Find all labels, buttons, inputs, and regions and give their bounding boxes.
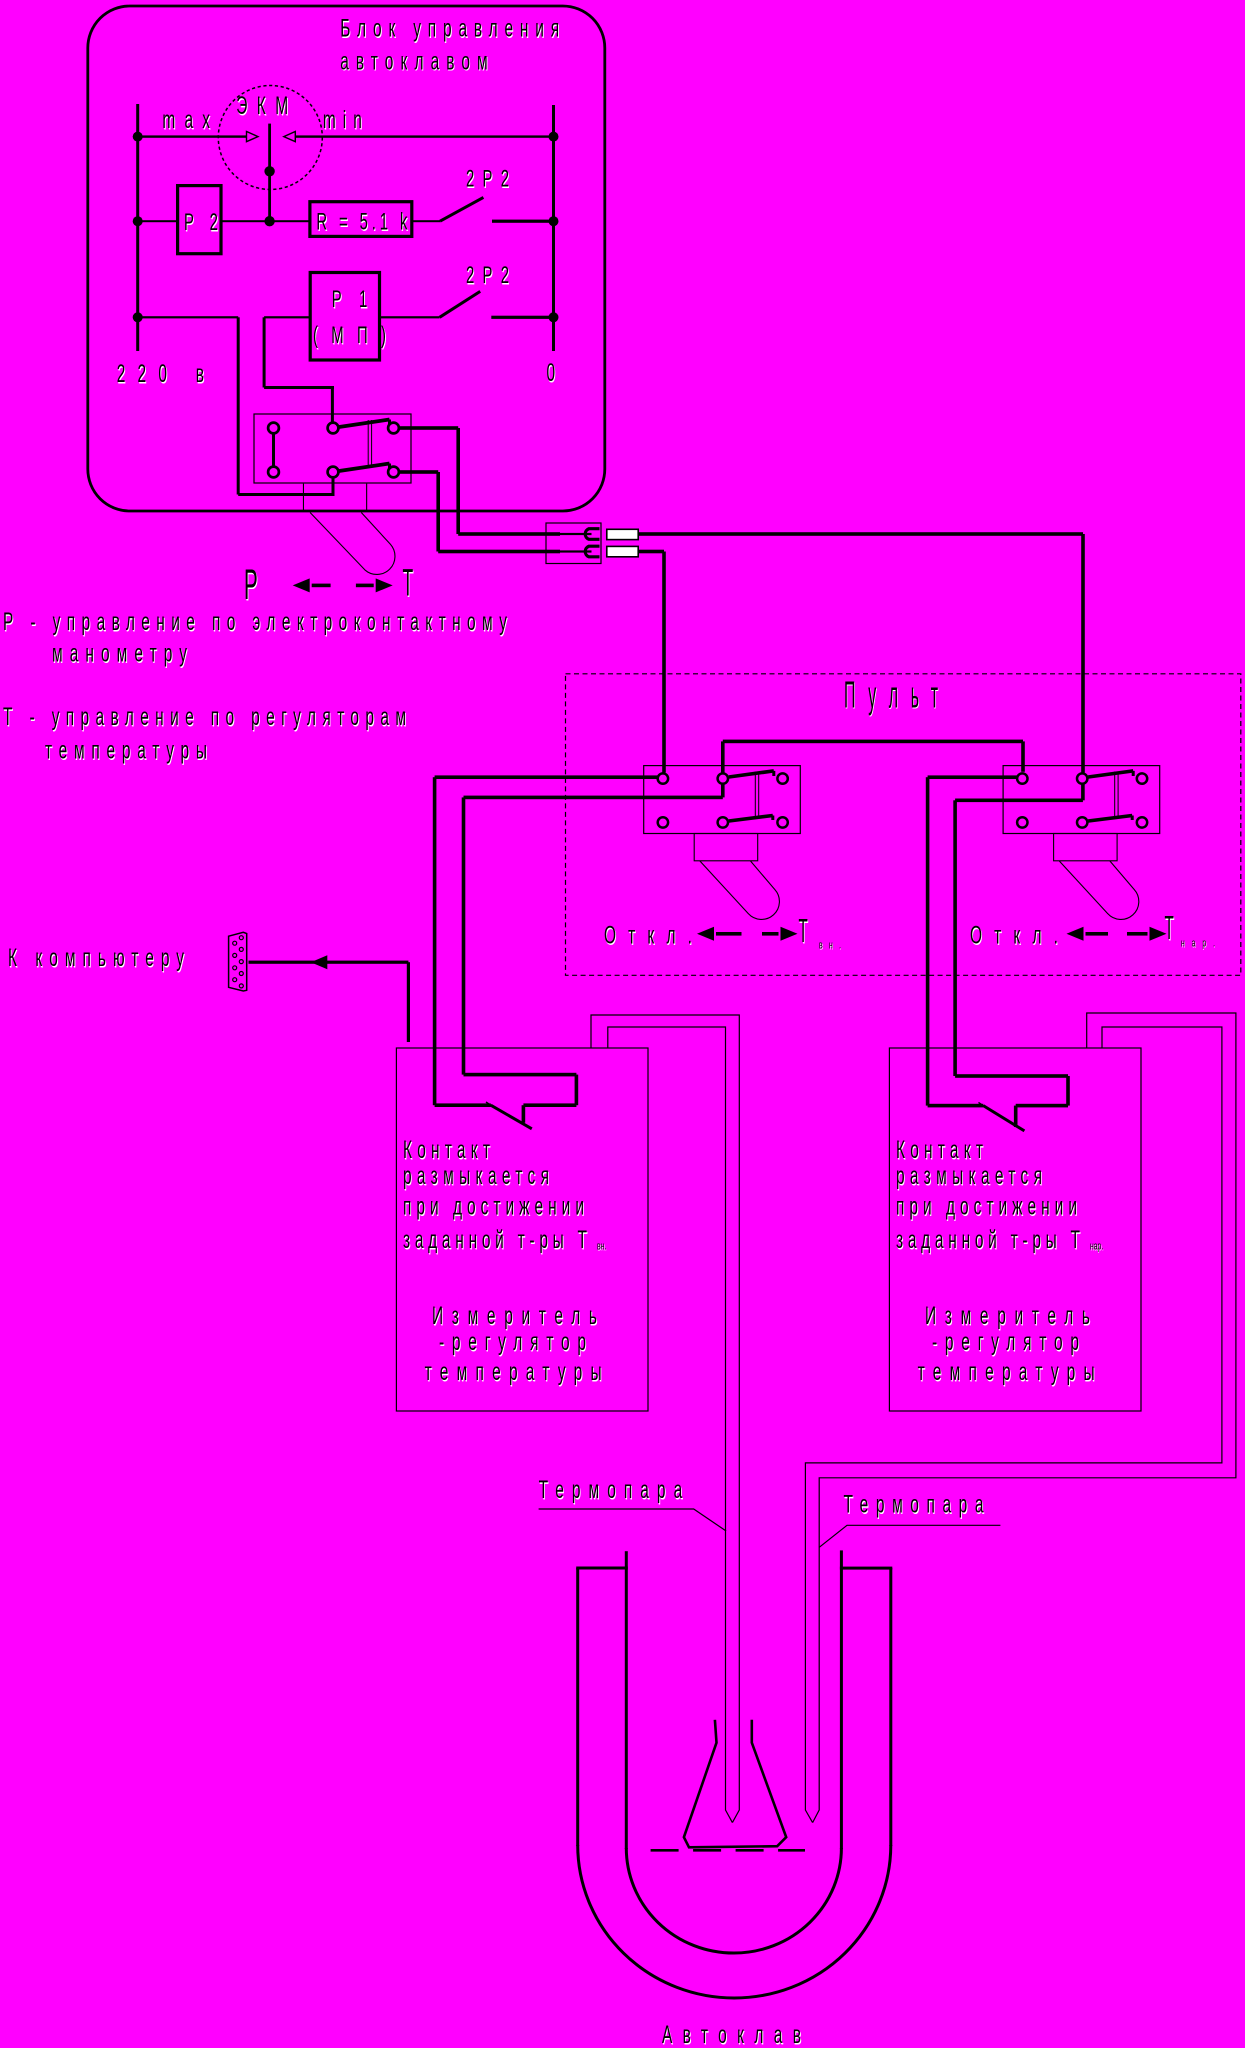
svg-text:Блок управления: Блок управления (340, 15, 559, 43)
svg-text:Р 1: Р 1 (332, 287, 368, 313)
svg-text:0: 0 (547, 359, 556, 387)
svg-text:Термопара: Термопара (539, 1476, 683, 1504)
svg-text:автоклавом: автоклавом (340, 48, 487, 76)
svg-text:min: min (323, 106, 362, 134)
svg-text:нар.: нар. (1090, 1240, 1103, 1252)
svg-text:2 Р 2: 2 Р 2 (466, 166, 509, 192)
svg-text:манометру: манометру (52, 640, 187, 668)
svg-text:ЭКМ: ЭКМ (236, 92, 288, 120)
svg-text:Термопара: Термопара (844, 1491, 984, 1519)
svg-text:Т: Т (799, 914, 808, 950)
svg-text:Т: Т (1165, 911, 1174, 947)
svg-text:размыкается: размыкается (403, 1162, 549, 1190)
svg-text:заданной т-ры Т: заданной т-ры Т (403, 1226, 587, 1254)
svg-text:вн.: вн. (597, 1240, 606, 1252)
svg-text:max: max (162, 106, 210, 134)
svg-text:размыкается: размыкается (896, 1162, 1042, 1190)
svg-text:( М П ): ( М П ) (313, 323, 386, 349)
svg-text:Р 2: Р 2 (184, 210, 218, 236)
svg-text:заданной т-ры Т: заданной т-ры Т (896, 1226, 1080, 1254)
svg-text:2 Р 2: 2 Р 2 (466, 263, 509, 289)
svg-text:Р: Р (244, 561, 258, 609)
svg-text:Т: Т (403, 562, 414, 604)
